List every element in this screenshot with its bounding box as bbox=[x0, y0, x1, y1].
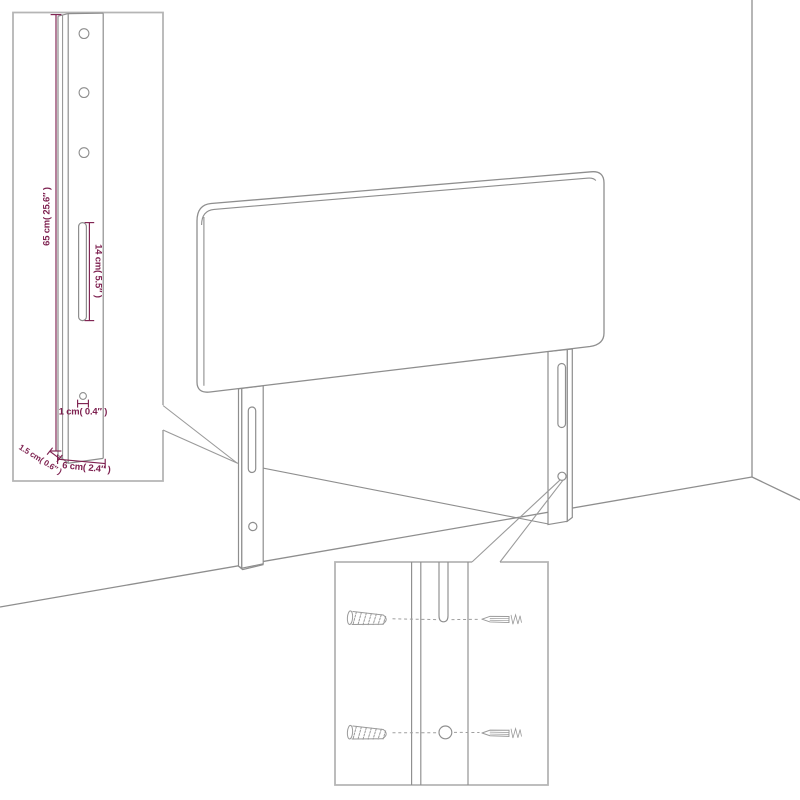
right-leg-side-face bbox=[567, 349, 572, 521]
callout-leg-detail bbox=[163, 406, 237, 464]
mounting-detail-inset bbox=[335, 562, 548, 785]
right-leg-hole bbox=[558, 472, 566, 480]
callout-line bbox=[163, 430, 237, 463]
right-leg-slot bbox=[558, 364, 566, 428]
dim-label-height: 65 cm( 25.6″ ) bbox=[41, 187, 52, 246]
left-leg-slot bbox=[248, 407, 255, 473]
headboard-right-leg bbox=[548, 349, 572, 525]
floor-line-right bbox=[752, 477, 800, 500]
headboard-left-leg bbox=[239, 386, 264, 570]
panel-bottom-back-edge bbox=[237, 463, 549, 524]
left-leg-hole bbox=[249, 522, 257, 530]
diagram-canvas: 65 cm( 25.6″ ) 14 cm( 5.5″ ) 1 cm( 0.4″ … bbox=[0, 0, 800, 800]
dim-label-hole: 1 cm( 0.4″ ) bbox=[59, 406, 108, 417]
dim-label-slot: 14 cm( 5.5″ ) bbox=[94, 244, 105, 298]
callout-line bbox=[163, 406, 237, 464]
callout-line bbox=[472, 480, 560, 562]
panel-outline bbox=[197, 172, 604, 392]
headboard-dimension-diagram: 65 cm( 25.6″ ) 14 cm( 5.5″ ) 1 cm( 0.4″ … bbox=[0, 0, 800, 800]
inset-border-mounting bbox=[335, 562, 548, 785]
headboard-panel bbox=[197, 172, 604, 392]
